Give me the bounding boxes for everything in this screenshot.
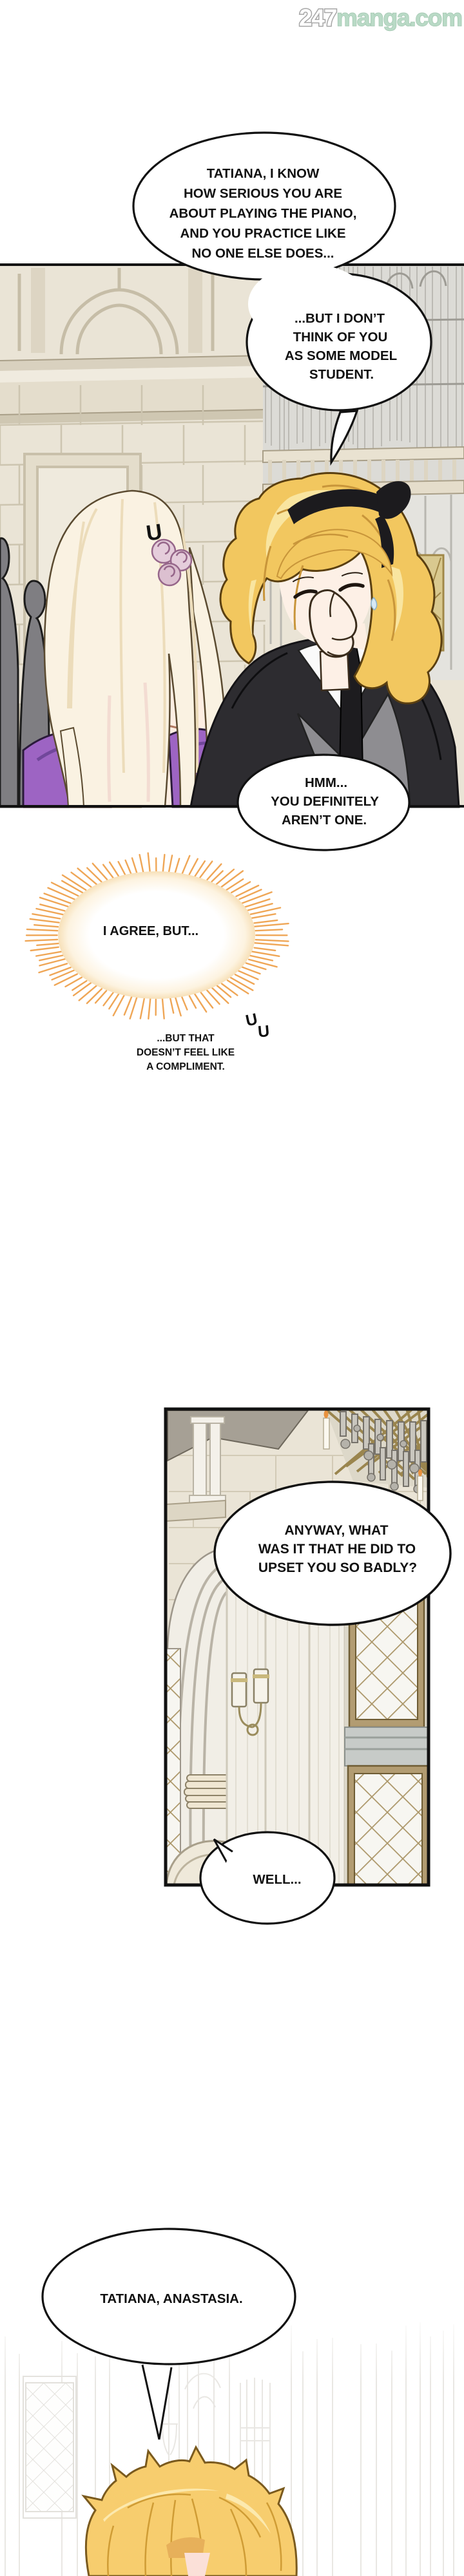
svg-text:I AGREE, BUT...: I AGREE, BUT... (103, 924, 198, 938)
svg-text:...BUT THAT: ...BUT THAT (157, 1033, 215, 1044)
svg-text:WAS IT THAT HE DID TO: WAS IT THAT HE DID TO (258, 1542, 416, 1557)
svg-text:THINK OF YOU: THINK OF YOU (293, 330, 388, 345)
svg-text:UPSET YOU SO BADLY?: UPSET YOU SO BADLY? (258, 1560, 417, 1575)
svg-text:AS SOME MODEL: AS SOME MODEL (285, 348, 397, 363)
svg-text:HOW SERIOUS YOU ARE: HOW SERIOUS YOU ARE (184, 186, 342, 201)
svg-text:A COMPLIMENT.: A COMPLIMENT. (146, 1061, 225, 1072)
svg-text:NO ONE ELSE DOES...: NO ONE ELSE DOES... (192, 246, 334, 261)
svg-text:TATIANA, I KNOW: TATIANA, I KNOW (207, 166, 320, 181)
svg-text:YOU DEFINITELY: YOU DEFINITELY (271, 794, 379, 809)
svg-text:...BUT I DON’T: ...BUT I DON’T (295, 311, 385, 326)
svg-text:DOESN’T FEEL LIKE: DOESN’T FEEL LIKE (137, 1047, 235, 1058)
svg-text:ABOUT PLAYING THE PIANO,: ABOUT PLAYING THE PIANO, (169, 206, 357, 221)
svg-text:AND YOU PRACTICE LIKE: AND YOU PRACTICE LIKE (180, 226, 345, 241)
svg-text:U: U (257, 1022, 270, 1041)
svg-text:TATIANA, ANASTASIA.: TATIANA, ANASTASIA. (100, 2291, 242, 2306)
svg-text:ANYWAY, WHAT: ANYWAY, WHAT (284, 1523, 388, 1538)
svg-text:HMM...: HMM... (305, 775, 347, 790)
svg-text:STUDENT.: STUDENT. (309, 367, 374, 382)
svg-text:247: 247 (299, 5, 336, 31)
svg-text:WELL...: WELL... (253, 1872, 301, 1887)
svg-text:manga.com: manga.com (336, 5, 462, 31)
svg-text:AREN’T ONE.: AREN’T ONE. (282, 813, 367, 828)
